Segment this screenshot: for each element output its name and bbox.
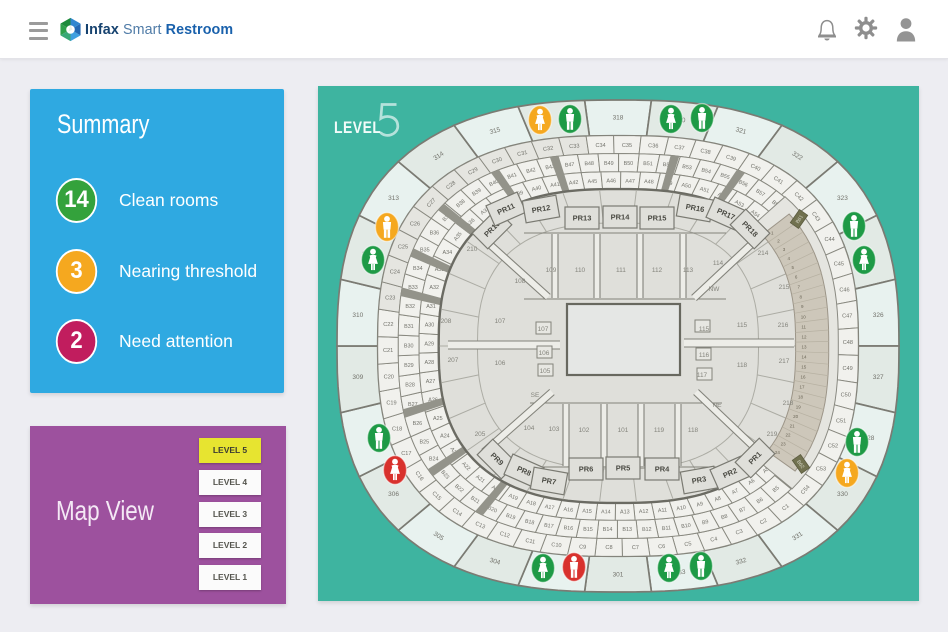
- svg-text:C45: C45: [834, 262, 844, 268]
- svg-text:A34: A34: [443, 250, 453, 256]
- svg-text:119: 119: [654, 427, 665, 434]
- svg-text:A11: A11: [658, 507, 668, 514]
- svg-text:210: 210: [467, 246, 478, 253]
- svg-text:101: 101: [618, 427, 629, 434]
- svg-text:117: 117: [697, 372, 708, 379]
- svg-text:109: 109: [546, 267, 557, 274]
- svg-text:205: 205: [475, 431, 486, 438]
- svg-text:102: 102: [579, 427, 590, 434]
- svg-text:B28: B28: [405, 383, 415, 389]
- svg-text:A15: A15: [582, 508, 592, 514]
- svg-text:PR14: PR14: [611, 213, 631, 222]
- svg-text:218: 218: [783, 400, 794, 407]
- svg-text:115: 115: [737, 322, 748, 329]
- svg-text:323: 323: [837, 195, 848, 202]
- svg-text:PR13: PR13: [573, 214, 592, 223]
- svg-text:B25: B25: [420, 439, 430, 445]
- svg-text:15: 15: [801, 365, 807, 370]
- svg-text:C44: C44: [824, 237, 834, 243]
- svg-text:A46: A46: [606, 179, 616, 185]
- svg-text:318: 318: [613, 115, 624, 122]
- svg-text:207: 207: [448, 357, 459, 364]
- svg-text:C17: C17: [401, 451, 411, 457]
- svg-text:219: 219: [767, 431, 778, 438]
- svg-text:118: 118: [737, 362, 748, 369]
- svg-text:330: 330: [837, 491, 848, 498]
- svg-text:B13: B13: [622, 527, 632, 533]
- svg-text:C46: C46: [839, 287, 849, 293]
- svg-text:107: 107: [538, 326, 549, 333]
- svg-text:21: 21: [790, 424, 796, 429]
- svg-text:A13: A13: [620, 509, 630, 515]
- svg-text:B32: B32: [405, 304, 415, 310]
- svg-text:NW: NW: [709, 286, 721, 293]
- svg-text:A42: A42: [569, 180, 579, 187]
- svg-text:17: 17: [799, 385, 805, 390]
- svg-text:B16: B16: [563, 525, 573, 532]
- svg-text:217: 217: [779, 358, 790, 365]
- svg-text:19: 19: [796, 404, 802, 409]
- svg-text:215: 215: [779, 284, 790, 291]
- svg-text:C18: C18: [392, 426, 402, 432]
- svg-text:18: 18: [798, 395, 804, 400]
- svg-text:C36: C36: [648, 143, 659, 150]
- svg-text:C23: C23: [385, 296, 395, 302]
- svg-text:20: 20: [793, 414, 799, 419]
- svg-text:A48: A48: [644, 179, 654, 185]
- svg-text:B34: B34: [413, 266, 423, 272]
- svg-text:C51: C51: [836, 418, 846, 424]
- svg-text:C9: C9: [579, 544, 586, 550]
- svg-text:C34: C34: [595, 143, 605, 149]
- svg-text:A24: A24: [440, 433, 450, 439]
- svg-text:111: 111: [616, 267, 626, 274]
- svg-text:14: 14: [801, 355, 807, 360]
- svg-text:C5: C5: [684, 541, 692, 548]
- svg-text:B30: B30: [404, 343, 414, 349]
- svg-text:C47: C47: [842, 314, 852, 320]
- svg-text:105: 105: [540, 368, 551, 375]
- svg-text:301: 301: [613, 571, 624, 578]
- svg-text:16: 16: [800, 375, 806, 380]
- svg-text:113: 113: [683, 267, 694, 274]
- svg-text:NE: NE: [712, 402, 722, 409]
- svg-text:208: 208: [441, 318, 452, 325]
- svg-text:C53: C53: [816, 467, 826, 473]
- svg-text:C10: C10: [551, 542, 562, 549]
- svg-text:B48: B48: [584, 161, 594, 167]
- svg-text:313: 313: [388, 195, 399, 202]
- svg-text:PR5: PR5: [616, 464, 631, 473]
- svg-text:PR15: PR15: [648, 214, 667, 223]
- svg-text:C22: C22: [383, 322, 393, 328]
- svg-text:PR4: PR4: [655, 465, 670, 474]
- svg-text:B11: B11: [662, 525, 672, 532]
- svg-text:C25: C25: [398, 245, 408, 251]
- svg-text:A28: A28: [425, 360, 435, 366]
- svg-text:C26: C26: [410, 221, 420, 227]
- svg-text:106: 106: [539, 350, 550, 357]
- svg-text:A16: A16: [563, 507, 573, 514]
- svg-text:C33: C33: [569, 143, 580, 150]
- svg-text:SE: SE: [531, 392, 540, 399]
- svg-text:C52: C52: [828, 443, 838, 449]
- svg-text:B26: B26: [413, 421, 423, 427]
- svg-text:B24: B24: [429, 457, 439, 463]
- svg-text:C35: C35: [622, 143, 632, 149]
- svg-text:108: 108: [515, 278, 526, 285]
- svg-text:107: 107: [495, 318, 506, 325]
- svg-text:C21: C21: [383, 348, 393, 354]
- svg-text:A47: A47: [625, 179, 635, 185]
- svg-text:B49: B49: [604, 161, 614, 167]
- svg-text:306: 306: [388, 491, 399, 498]
- svg-text:B15: B15: [583, 527, 593, 533]
- svg-text:22: 22: [785, 433, 791, 438]
- svg-text:B36: B36: [430, 230, 440, 236]
- svg-text:327: 327: [873, 374, 884, 381]
- svg-text:118: 118: [688, 427, 699, 434]
- svg-text:C20: C20: [384, 375, 394, 381]
- svg-text:110: 110: [575, 267, 586, 274]
- svg-text:C48: C48: [843, 340, 853, 346]
- svg-text:116: 116: [699, 352, 710, 359]
- svg-text:A45: A45: [588, 179, 598, 185]
- svg-text:10: 10: [801, 314, 807, 319]
- svg-text:115: 115: [699, 326, 710, 333]
- svg-text:104: 104: [524, 425, 535, 432]
- svg-text:C19: C19: [386, 401, 396, 407]
- svg-text:12: 12: [801, 334, 807, 339]
- svg-text:106: 106: [495, 360, 506, 367]
- svg-text:A29: A29: [424, 341, 434, 347]
- svg-text:13: 13: [801, 345, 807, 350]
- svg-text:310: 310: [352, 312, 363, 319]
- svg-text:B12: B12: [642, 527, 652, 533]
- svg-text:C50: C50: [841, 392, 851, 398]
- svg-text:C49: C49: [842, 366, 852, 372]
- svg-text:B31: B31: [404, 324, 414, 330]
- svg-text:309: 309: [352, 374, 363, 381]
- svg-text:C6: C6: [658, 544, 666, 550]
- svg-text:B50: B50: [624, 161, 634, 167]
- svg-text:103: 103: [549, 426, 560, 433]
- svg-text:112: 112: [652, 267, 663, 274]
- svg-text:C24: C24: [390, 270, 400, 276]
- svg-text:216: 216: [778, 322, 789, 329]
- svg-text:23: 23: [781, 442, 787, 447]
- svg-text:326: 326: [873, 312, 884, 319]
- svg-text:11: 11: [801, 324, 806, 329]
- svg-text:C37: C37: [674, 145, 685, 152]
- svg-text:PR6: PR6: [579, 465, 594, 474]
- svg-text:B51: B51: [643, 161, 653, 167]
- svg-text:C7: C7: [632, 545, 639, 551]
- svg-text:C8: C8: [605, 545, 612, 551]
- svg-text:B29: B29: [404, 363, 414, 369]
- svg-text:A25: A25: [433, 416, 443, 422]
- svg-text:B47: B47: [565, 162, 575, 169]
- svg-text:B14: B14: [603, 527, 613, 533]
- svg-text:A14: A14: [601, 509, 611, 515]
- svg-text:A32: A32: [429, 285, 439, 291]
- svg-text:24: 24: [775, 450, 781, 455]
- svg-text:214: 214: [758, 250, 769, 257]
- svg-text:A12: A12: [639, 509, 649, 515]
- svg-text:A30: A30: [425, 323, 435, 329]
- svg-text:A27: A27: [426, 379, 436, 385]
- svg-text:A31: A31: [426, 304, 436, 310]
- svg-text:114: 114: [713, 260, 724, 267]
